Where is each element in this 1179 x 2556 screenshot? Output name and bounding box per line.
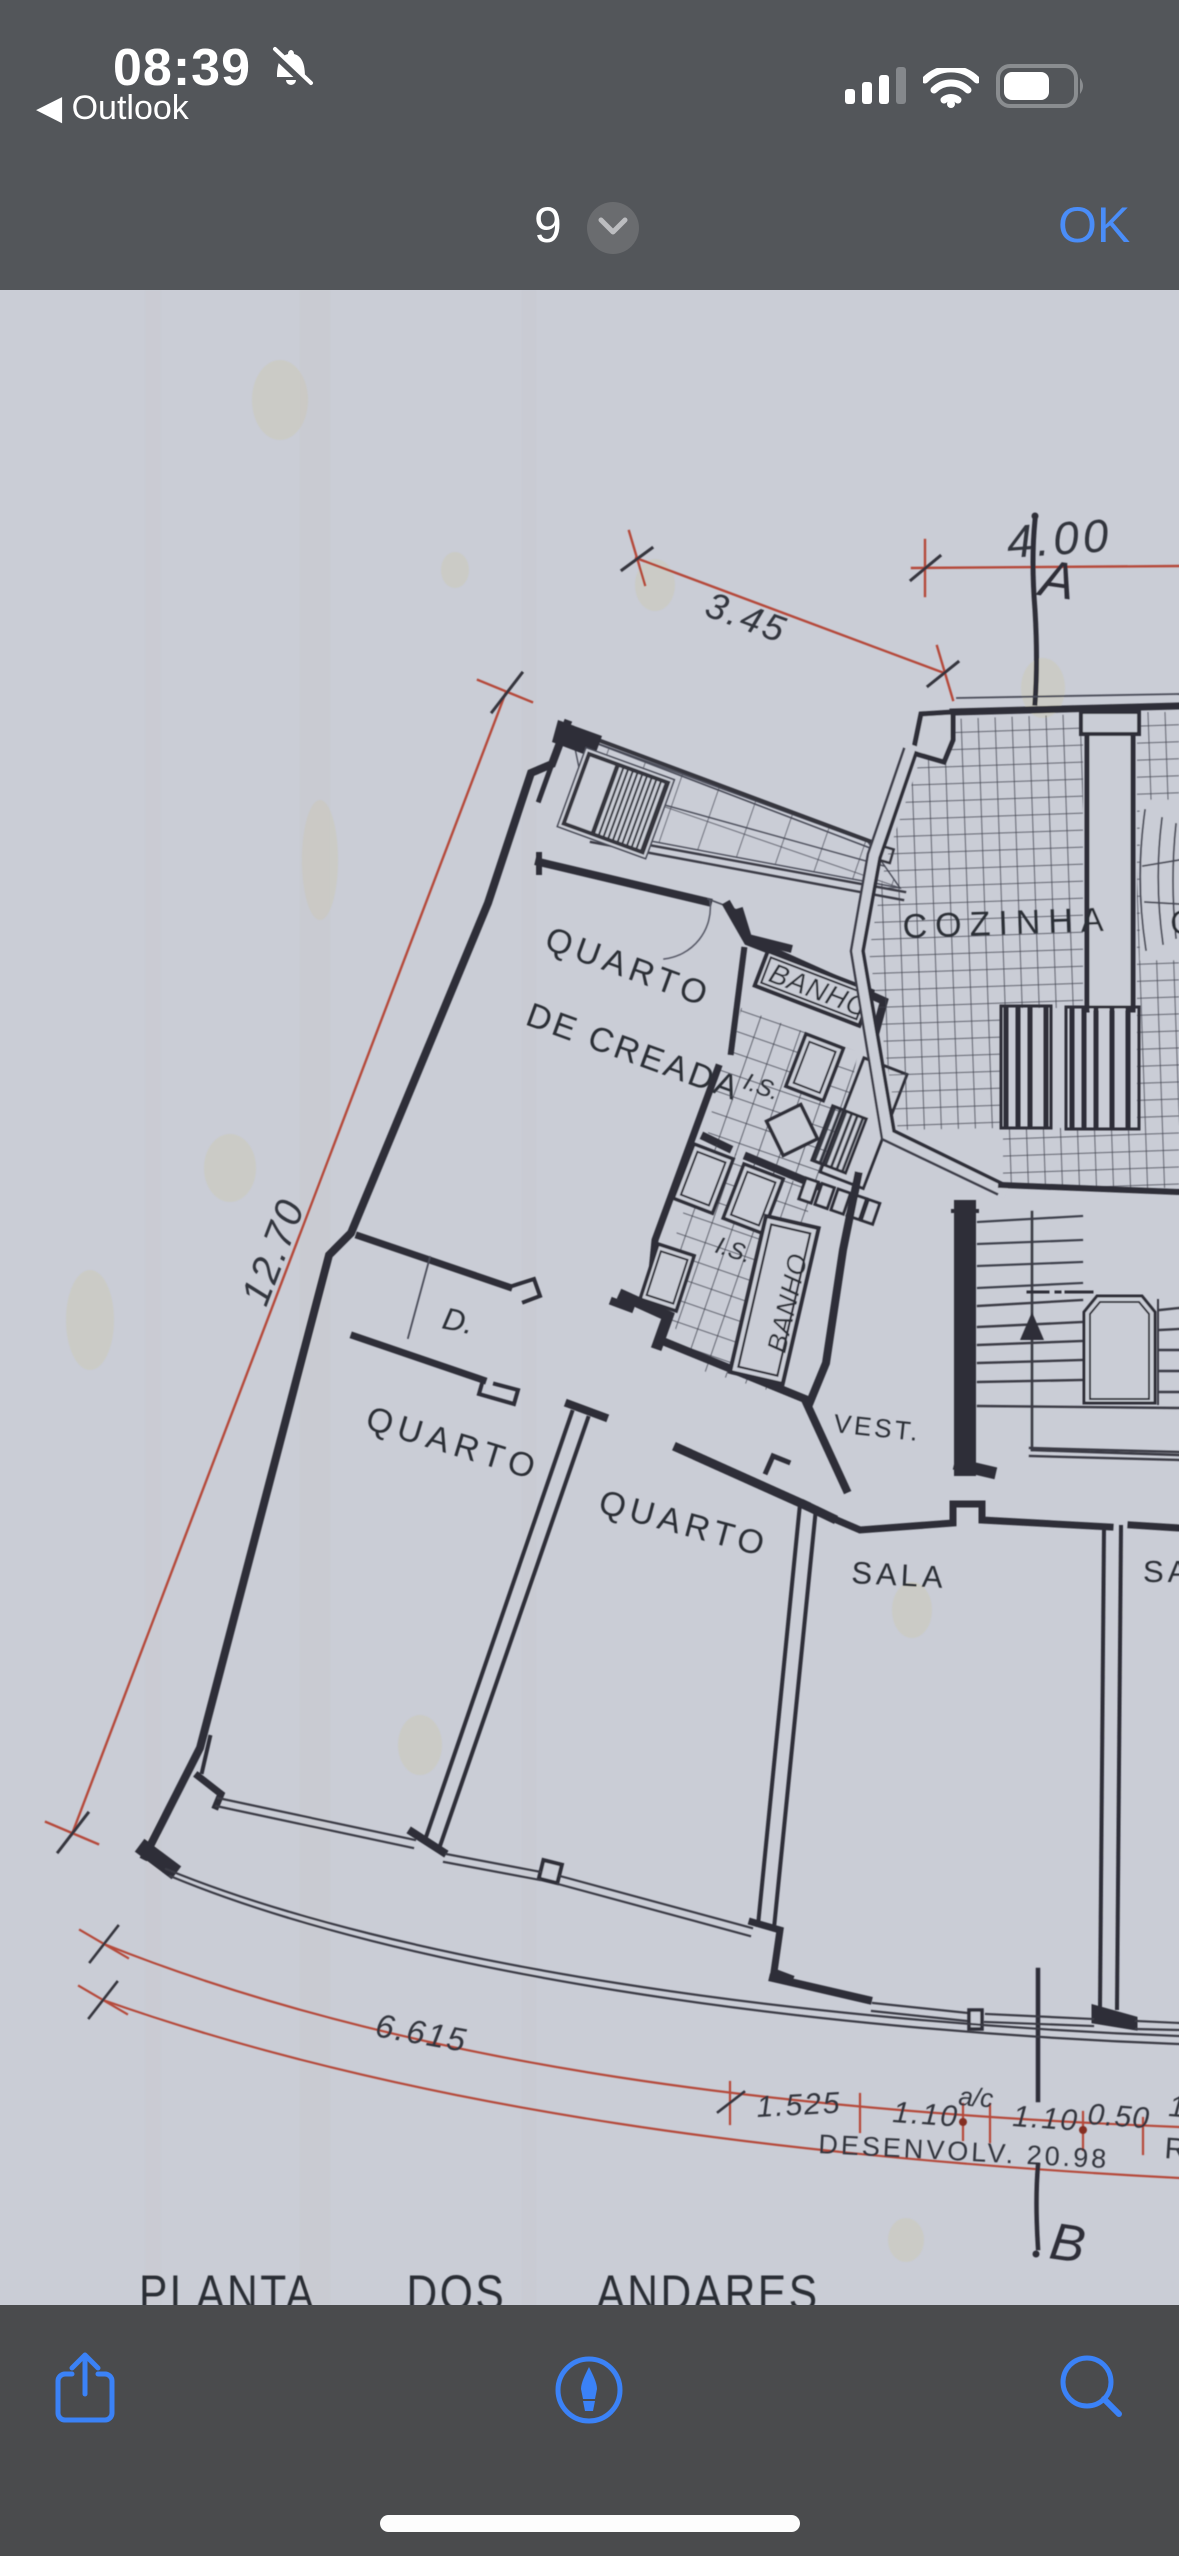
svg-text:SALA: SALA: [851, 1555, 948, 1595]
svg-text:PLANTA DOS ANDARES: PLANTA DOS ANDARES: [139, 2265, 820, 2305]
svg-text:D.: D.: [440, 1301, 478, 1342]
svg-text:a/c: a/c: [958, 2081, 995, 2113]
svg-text:1.10: 1.10: [1012, 2100, 1081, 2138]
svg-text:0.50: 0.50: [1087, 2098, 1152, 2135]
svg-text:QUARTO: QUARTO: [540, 920, 717, 1015]
svg-text:1: 1: [1168, 2090, 1179, 2124]
svg-text:C: C: [1170, 904, 1179, 942]
svg-text:R: R: [1164, 2132, 1179, 2166]
svg-text:3.45: 3.45: [700, 584, 793, 651]
svg-text:QUARTO: QUARTO: [362, 1399, 545, 1488]
svg-text:SA: SA: [1143, 1554, 1179, 1589]
svg-text:COZINHA: COZINHA: [902, 901, 1112, 946]
svg-text:B: B: [1046, 2212, 1088, 2274]
svg-text:QUARTO: QUARTO: [595, 1483, 773, 1565]
svg-text:1.10: 1.10: [892, 2096, 961, 2134]
svg-text:1.525: 1.525: [756, 2087, 843, 2124]
svg-text:6.615: 6.615: [373, 2006, 471, 2059]
svg-text:VEST.: VEST.: [832, 1408, 922, 1447]
